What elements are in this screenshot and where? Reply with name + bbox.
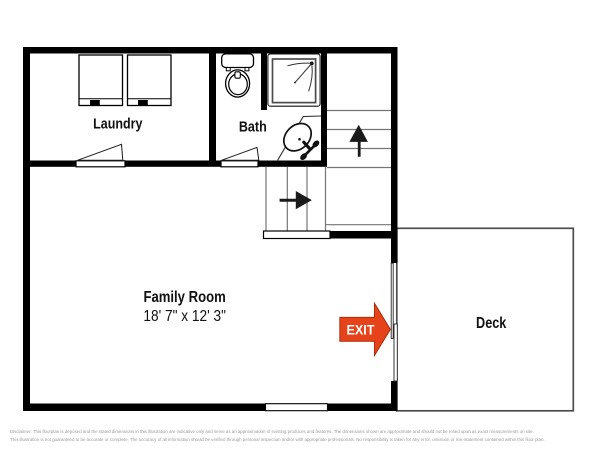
svg-text:Deck: Deck bbox=[476, 315, 506, 332]
svg-text:Disclaimer: This floorplan is: Disclaimer: This floorplan is deposed an… bbox=[10, 429, 534, 434]
svg-text:This illustration is not guara: This illustration is not guaranteed to b… bbox=[10, 437, 545, 442]
svg-text:EXIT: EXIT bbox=[347, 322, 376, 337]
svg-text:Laundry: Laundry bbox=[93, 116, 143, 132]
svg-text:18' 7" x 12' 3": 18' 7" x 12' 3" bbox=[143, 308, 226, 325]
svg-text:Family Room: Family Room bbox=[143, 289, 225, 306]
svg-text:Bath: Bath bbox=[239, 120, 267, 136]
